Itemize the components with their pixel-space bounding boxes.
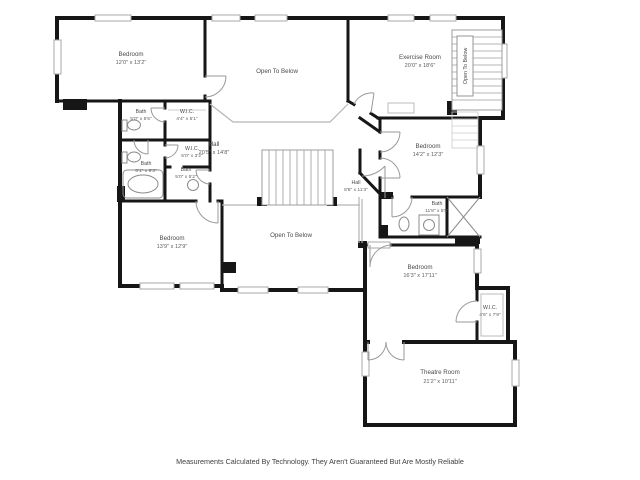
- room-label: Open To Below: [256, 68, 298, 75]
- room-label: W.I.C.: [483, 305, 497, 311]
- room-label: Exercise Room: [399, 54, 441, 61]
- room-label: Bedroom: [415, 143, 440, 150]
- room-dims: 11'8" x 5'5": [425, 208, 449, 214]
- bench: [388, 103, 414, 113]
- sink-icon: [419, 215, 439, 235]
- bathtub-icon: [123, 170, 163, 198]
- room-label: Bath: [181, 167, 192, 173]
- room-label: Bedroom: [407, 264, 432, 271]
- floor-plan-page: Open To Below Bed: [0, 0, 640, 480]
- room-dims: 5'0" x 5'5": [130, 116, 152, 122]
- room-label: Bedroom: [159, 235, 184, 242]
- toilet-icon: [399, 217, 409, 231]
- room-dims: 16'3" x 17'11": [403, 273, 436, 279]
- room-dims: 14'2" x 12'3": [413, 152, 444, 158]
- stairs-top-right: Open To Below: [452, 30, 502, 148]
- floor-plan-svg: Open To Below Bed: [0, 0, 640, 480]
- room-dims: 5'1" x 9'3": [135, 168, 157, 174]
- stairs-center: [262, 150, 333, 205]
- room-dims: 20'5" x 14'8": [199, 150, 230, 156]
- room-label: Hall: [352, 180, 361, 186]
- sink-icon: [188, 180, 199, 191]
- room-label: Bath: [136, 109, 147, 115]
- room-label: Bedroom: [118, 51, 143, 58]
- room-dims: 13'9" x 12'9": [157, 244, 188, 250]
- room-dims: 4'4" x 5'1": [176, 116, 198, 122]
- room-dims: 4'6" x 7'9": [479, 312, 501, 318]
- room-dims: 21'2" x 10'11": [423, 379, 456, 385]
- room-label: Bath: [141, 161, 152, 167]
- stairs-open-to-below-label: Open To Below: [463, 48, 469, 85]
- room-label: W.I.C.: [180, 109, 194, 115]
- room-dims: 20'0" x 18'6": [405, 63, 436, 69]
- shower-icon: [447, 197, 480, 237]
- room-label: Bath: [432, 201, 443, 207]
- room-label: Hall: [209, 141, 220, 148]
- room-label: W.I.C.: [185, 146, 199, 152]
- disclaimer-text: Measurements Calculated By Technology. T…: [176, 457, 464, 466]
- room-dims: 12'0" x 13'2": [116, 60, 147, 66]
- room-label: Open To Below: [270, 232, 312, 239]
- room-dims: 5'0" x 5'2": [175, 174, 197, 180]
- room-dims: 8'8" x 11'3": [344, 187, 368, 193]
- room-label: Theatre Room: [420, 369, 460, 376]
- toilet-icon: [122, 152, 141, 163]
